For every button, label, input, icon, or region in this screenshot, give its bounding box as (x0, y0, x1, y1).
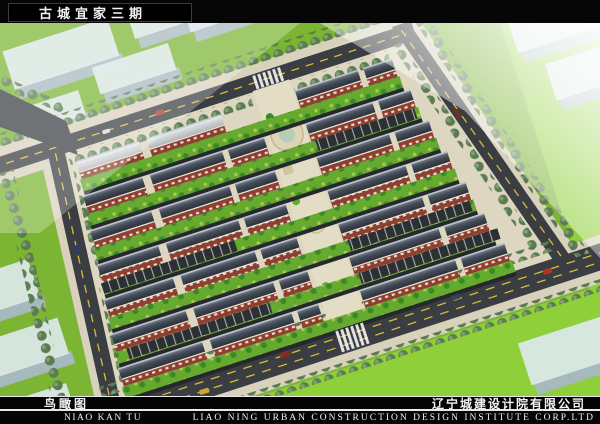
presentation-board: 古城宜家三期 (0, 0, 600, 424)
drawing-title: 古城宜家三期 (9, 3, 147, 22)
title-bar: 古城宜家三期 (0, 0, 600, 23)
drawing-title-box: 古城宜家三期 (8, 3, 192, 22)
caption-bar: 鸟瞰图 辽宁城建设计院有限公司 NIAO KAN TU LIAO NING UR… (0, 396, 600, 424)
company-name-en: LIAO NING URBAN CONSTRUCTION DESIGN INST… (193, 413, 595, 423)
aerial-rendering (0, 23, 600, 396)
view-label-pinyin: NIAO KAN TU (64, 413, 142, 423)
